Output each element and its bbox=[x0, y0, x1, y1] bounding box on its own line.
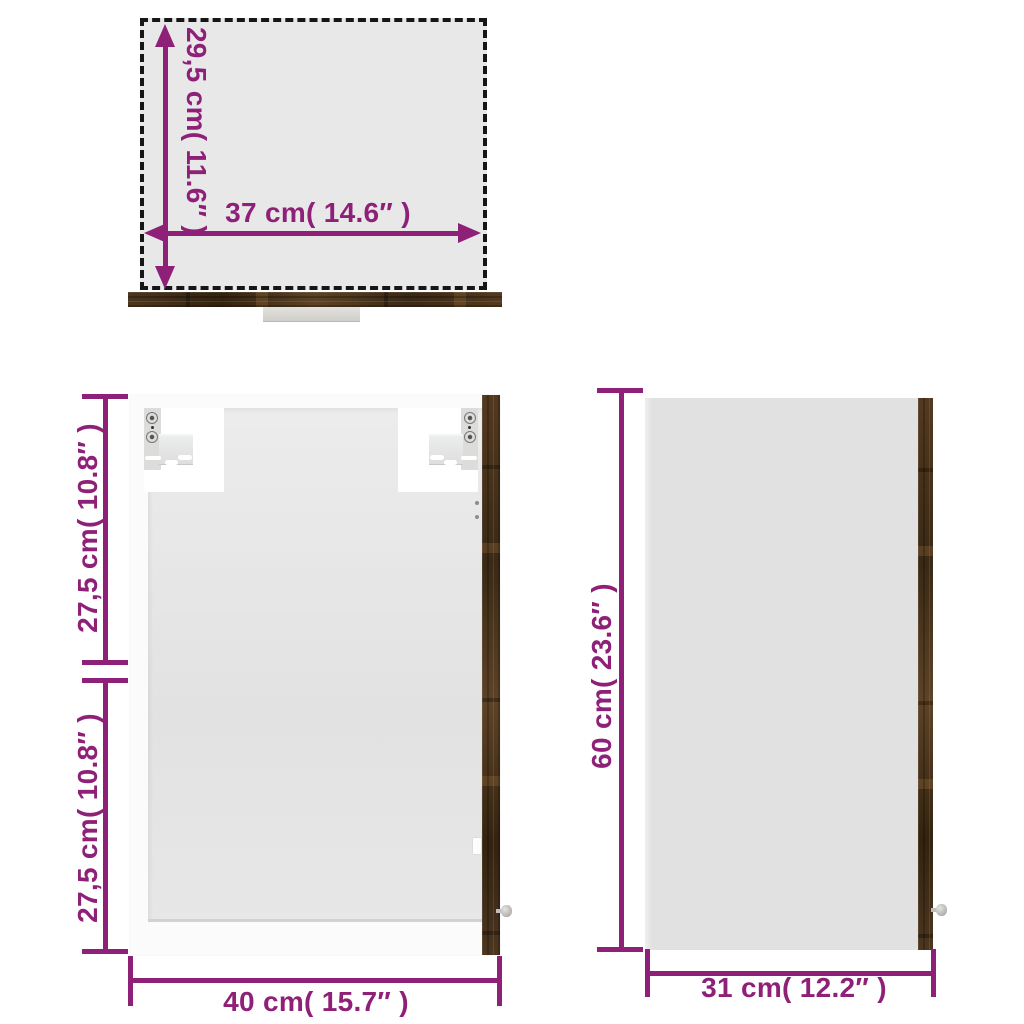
top-view-width-label: 37 cm( 14.6″ ) bbox=[225, 196, 411, 230]
mounting-bracket-right bbox=[398, 408, 478, 492]
width-arrow-shaft bbox=[164, 231, 460, 236]
top-view-depth-label: 29,5 cm( 11.6″ ) bbox=[178, 0, 214, 291]
screw-icon bbox=[464, 412, 476, 424]
hinge-dot bbox=[475, 515, 479, 519]
arrow-head-left-icon bbox=[144, 223, 167, 243]
arrow-head-up-icon bbox=[155, 24, 175, 47]
front-width-dim-line bbox=[128, 978, 502, 983]
hinge-dot bbox=[475, 501, 479, 505]
bracket-slot bbox=[145, 456, 161, 460]
pin-hole-icon bbox=[468, 426, 471, 429]
pin-hole-icon bbox=[151, 426, 154, 429]
side-view-height-label: 60 cm( 23.6″ ) bbox=[584, 516, 620, 836]
front-view-width-label: 40 cm( 15.7″ ) bbox=[223, 985, 409, 1019]
bracket-slot bbox=[178, 455, 192, 460]
bracket-slot bbox=[165, 460, 178, 465]
bracket-slot bbox=[430, 455, 444, 460]
side-view-depth-label: 31 cm( 12.2″ ) bbox=[701, 971, 887, 1005]
side-view-wood-edge bbox=[918, 398, 933, 950]
arrow-head-right-icon bbox=[458, 223, 481, 243]
door-knob bbox=[931, 903, 947, 917]
front-view-lower-height-label: 27,5 cm( 10.8″ ) bbox=[70, 658, 106, 978]
screw-icon bbox=[464, 431, 476, 443]
panel-highlight bbox=[645, 398, 652, 950]
dim-cap bbox=[497, 956, 502, 1006]
top-view-wood-edge bbox=[128, 292, 502, 307]
screw-icon bbox=[146, 431, 158, 443]
knob-head bbox=[936, 904, 947, 916]
dim-cap bbox=[597, 947, 643, 952]
front-view-upper-height-label: 27,5 cm( 10.8″ ) bbox=[70, 368, 106, 688]
hinge-plate bbox=[473, 838, 481, 854]
bottom-panel-edge bbox=[148, 919, 482, 922]
bracket-slot bbox=[461, 456, 477, 460]
screw-icon bbox=[146, 412, 158, 424]
top-view-handle bbox=[263, 307, 360, 322]
bracket-slot bbox=[444, 460, 457, 465]
side-view-panel bbox=[645, 398, 933, 950]
door-knob bbox=[496, 904, 512, 918]
front-view-wood-edge bbox=[482, 395, 500, 955]
knob-head bbox=[501, 905, 512, 917]
arrow-head-down-icon bbox=[155, 266, 175, 289]
front-view-cabinet bbox=[130, 395, 500, 955]
product-dimension-diagram: 29,5 cm( 11.6″ ) 37 cm( 14.6″ ) bbox=[0, 0, 1024, 1024]
dim-cap bbox=[931, 949, 936, 997]
mounting-bracket-left bbox=[144, 408, 224, 492]
